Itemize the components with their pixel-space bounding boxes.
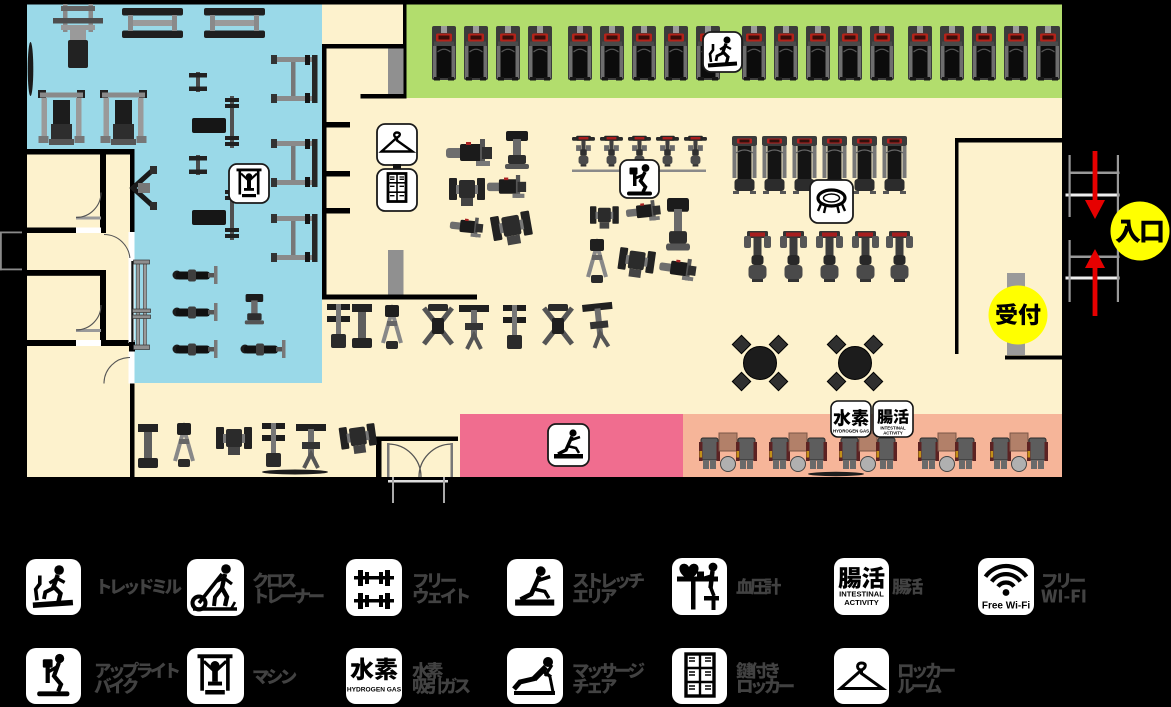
svg-text:Free Wi-Fi: Free Wi-Fi (982, 601, 1030, 612)
svg-text:ACTIVITY: ACTIVITY (844, 598, 879, 607)
svg-text:ACTIVITY: ACTIVITY (883, 431, 903, 436)
svg-text:HYDROGEN GAS: HYDROGEN GAS (833, 429, 869, 434)
svg-text:HYDROGEN GAS: HYDROGEN GAS (347, 687, 402, 694)
